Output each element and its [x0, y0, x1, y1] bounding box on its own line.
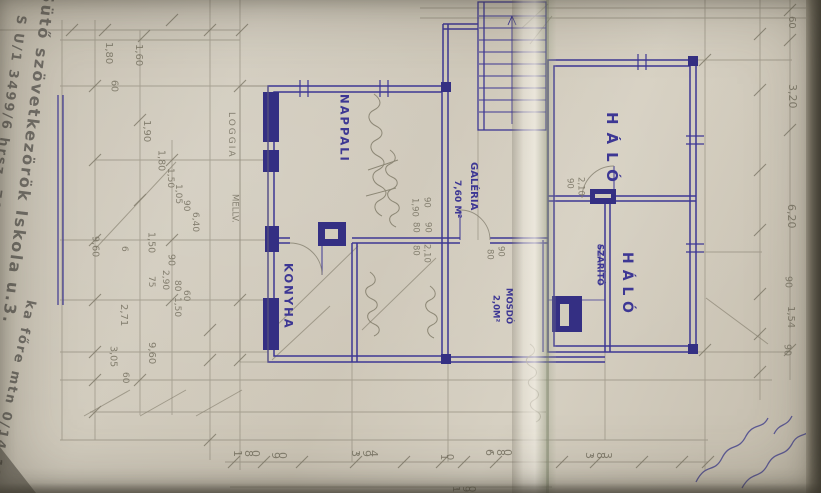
dim-door-8: 2,10 — [576, 177, 585, 196]
room-halo-1: HÁLÓ — [604, 112, 619, 190]
dim-door-10: 90 — [496, 246, 505, 257]
room-galeria-area: 7,60 M² — [452, 180, 461, 218]
dim-door-4: 90 — [423, 222, 432, 233]
dim-bottom-7: 1,90 — [452, 484, 474, 493]
dim-left-21: 3,05 — [108, 346, 118, 367]
room-loggia-mellv: MELLV. — [230, 194, 239, 223]
dim-left-19: 2,71 — [118, 304, 128, 326]
dim-left-10: 9,60 — [90, 236, 100, 257]
dim-door-7: 90 — [565, 178, 574, 189]
dim-door-9: 80 — [485, 249, 494, 260]
dim-left-8: 90 — [181, 200, 190, 211]
dim-door-6: 2,10 — [422, 244, 431, 263]
dim-right-6: 90 — [782, 344, 792, 356]
room-halo-2: HÁLÓ — [620, 252, 634, 319]
dim-bottom-4: 10 — [440, 452, 453, 462]
dim-left-14: 2,90 — [160, 270, 169, 290]
pencil-scribbles — [366, 94, 541, 422]
dim-left-4: 1,90 — [141, 120, 151, 142]
dim-door-5: 80 — [411, 245, 420, 256]
dim-right-4: 90 — [783, 276, 793, 288]
room-nappali: NAPPALI — [338, 94, 350, 163]
dim-bottom-5: 6,80 — [486, 447, 511, 458]
dim-left-9: 6,40 — [190, 212, 199, 232]
dim-left-20: 9,60 — [146, 342, 156, 364]
dim-door-3: 80 — [411, 222, 420, 233]
room-konyha: KONYHA — [282, 263, 294, 330]
dim-left-1: 1,80 — [103, 42, 113, 64]
room-loggia: LOGGIA — [226, 112, 235, 159]
room-mosdo-area: 2,0M² — [491, 295, 500, 322]
dim-bottom-6: 3,83 — [586, 450, 611, 461]
dim-left-12: 1,50 — [146, 232, 156, 253]
dim-bottom-2: 90 — [272, 450, 286, 461]
cursive-note — [696, 416, 812, 488]
dim-right-5: 1,54 — [785, 306, 795, 328]
dim-left-16: 60 — [181, 290, 190, 301]
dim-left-2: 60 — [109, 80, 119, 92]
post-cutouts — [325, 194, 611, 326]
dim-right-3: 6,20 — [786, 204, 797, 229]
room-galeria: GALÉRIA — [468, 162, 478, 210]
dim-right-1: 60 — [786, 16, 796, 29]
dim-left-13: 90 — [166, 254, 176, 266]
dim-left-15: 80 — [172, 280, 181, 291]
dimension-ticks — [66, 4, 796, 468]
dim-door-1: 1,90 — [410, 198, 419, 217]
dim-door-2: 90 — [422, 197, 431, 208]
dim-left-11: 6 — [119, 246, 128, 252]
dim-left-18: 1,50 — [172, 297, 181, 317]
dim-left-3: 1,60 — [133, 44, 143, 66]
room-mosdo: MOSDÓ — [504, 288, 513, 324]
staircase — [478, 2, 546, 130]
dim-left-22: 60 — [120, 372, 129, 383]
dim-right-2: 3,20 — [787, 84, 798, 109]
room-szarito: SZÁRÍTÓ — [595, 244, 604, 286]
dim-bottom-3: 3,94 — [352, 448, 377, 459]
dim-bottom-1: 1,80 — [234, 448, 259, 459]
dim-left-17: 75 — [146, 276, 155, 287]
floorplan-photo: NAPPALIKONYHAHÁLÓHÁLÓSZÁRÍTÓGALÉRIA7,60 … — [0, 0, 821, 493]
